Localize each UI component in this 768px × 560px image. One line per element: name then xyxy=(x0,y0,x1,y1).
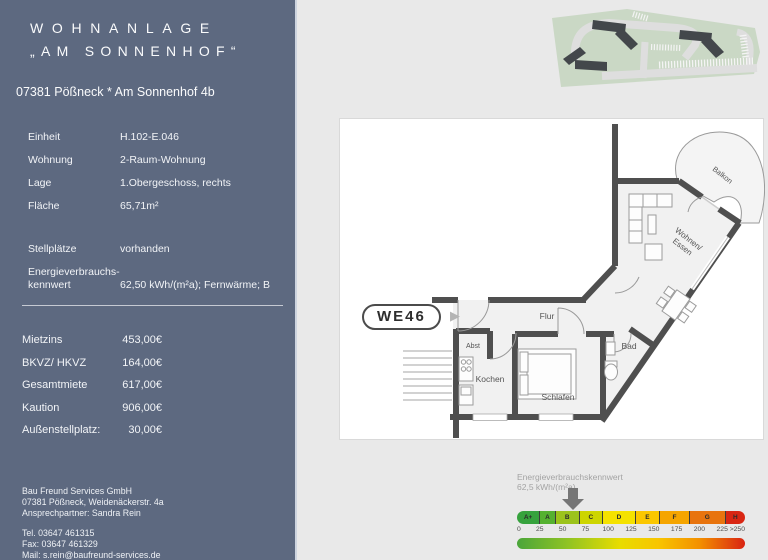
info-label: Stellplätze xyxy=(28,243,120,255)
energy-tick: >250 xyxy=(730,526,745,533)
price-row-mietzins: Mietzins 453,00€ xyxy=(22,334,295,346)
energy-gradient-bar xyxy=(517,538,745,549)
room-label-bad: Bad xyxy=(621,341,636,351)
energy-class-F: F xyxy=(659,511,689,524)
floorplan-panel: Flur Abst Kochen Schlafen Bad Wohnen/ Es… xyxy=(339,118,764,440)
info-row-energie: kennwert 62,50 kWh/(m²a); Fernwärme; B xyxy=(28,279,295,292)
energy-class-D: D xyxy=(602,511,635,524)
price-value: 617,00€ xyxy=(112,379,162,391)
energy-class-G: G xyxy=(689,511,725,524)
price-row-bkvz: BKVZ/ HKVZ 164,00€ xyxy=(22,357,295,369)
energy-class-A: A xyxy=(539,511,554,524)
info-value: 65,71m² xyxy=(120,200,295,212)
price-label: Kaution xyxy=(22,402,112,414)
price-value: 164,00€ xyxy=(112,357,162,369)
info-label: Lage xyxy=(28,177,120,189)
price-value: 453,00€ xyxy=(112,334,162,346)
side-table xyxy=(648,215,656,234)
energy-value-arrow-icon xyxy=(561,488,585,510)
contact-block: Bau Freund Services GmbH 07381 Pößneck, … xyxy=(22,486,164,560)
info-label: Fläche xyxy=(28,200,120,212)
stairs-icon xyxy=(403,351,452,400)
price-row-aussenstellplatz: Außenstellplatz: 30,00€ xyxy=(22,424,295,436)
floorplan-drawing: Flur Abst Kochen Schlafen Bad Wohnen/ Es… xyxy=(340,119,765,441)
contact-mail: Mail: s.rein@baufreund-services.de xyxy=(22,550,164,560)
contact-tel: Tel. 03647 461315 xyxy=(22,528,164,539)
unit-tag: WE46 xyxy=(362,304,441,330)
energy-tick: 175 xyxy=(671,526,682,533)
energy-tick: 200 xyxy=(694,526,705,533)
info-value: 1.Obergeschoss, rechts xyxy=(120,177,295,189)
energy-label-line2: kennwert xyxy=(28,279,120,292)
main-area: Flur Abst Kochen Schlafen Bad Wohnen/ Es… xyxy=(299,0,768,560)
energy-tick: 150 xyxy=(648,526,659,533)
energy-label-line1: Energieverbrauchs- xyxy=(28,266,295,279)
price-label: Mietzins xyxy=(22,334,112,346)
energy-axis-ticks: 0255075100125150175200225>250 xyxy=(517,526,745,535)
energy-value: 62,50 kWh/(m²a); Fernwärme; B xyxy=(120,279,270,292)
energy-class-A+: A+ xyxy=(517,511,539,524)
price-value: 906,00€ xyxy=(112,402,162,414)
energy-class-H: H xyxy=(725,511,745,524)
info-row-lage: Lage 1.Obergeschoss, rechts xyxy=(28,177,295,189)
page-title-line2: „AM SONNENHOF“ xyxy=(30,43,295,59)
sidebar-divider xyxy=(22,305,283,306)
room-label-schlafen: Schlafen xyxy=(541,392,574,402)
info-value: vorhanden xyxy=(120,243,295,255)
price-list: Mietzins 453,00€ BKVZ/ HKVZ 164,00€ Gesa… xyxy=(0,334,295,436)
room-label-flur: Flur xyxy=(540,311,555,321)
site-plan-illustration xyxy=(547,2,768,97)
toilet xyxy=(605,364,618,380)
energy-tick: 125 xyxy=(625,526,636,533)
info-value: H.102-E.046 xyxy=(120,131,295,143)
price-label: Gesamtmiete xyxy=(22,379,112,391)
energy-class-bar: A+ABCDEFGH xyxy=(517,511,745,524)
energy-tick: 0 xyxy=(517,526,521,533)
info-label: Einheit xyxy=(28,131,120,143)
property-address: 07381 Pößneck * Am Sonnenhof 4b xyxy=(0,85,295,99)
title-block: WOHNANLAGE „AM SONNENHOF“ xyxy=(0,0,295,59)
contact-address: 07381 Pößneck, Weidenäckerstr. 4a xyxy=(22,497,164,508)
energy-class-E: E xyxy=(635,511,659,524)
expose-page: WOHNANLAGE „AM SONNENHOF“ 07381 Pößneck … xyxy=(0,0,768,560)
contact-person: Ansprechpartner: Sandra Rein xyxy=(22,508,164,519)
energy-class-B: B xyxy=(555,511,579,524)
price-label: Außenstellplatz: xyxy=(22,424,112,436)
energy-tick: 225 xyxy=(717,526,728,533)
energy-chart-title: Energieverbrauchskennwert xyxy=(517,472,745,482)
info-value: 2-Raum-Wohnung xyxy=(120,154,295,166)
unit-tag-label: WE46 xyxy=(377,308,426,325)
sidebar: WOHNANLAGE „AM SONNENHOF“ 07381 Pößneck … xyxy=(0,0,297,560)
info-label: Wohnung xyxy=(28,154,120,166)
price-row-kaution: Kaution 906,00€ xyxy=(22,402,295,414)
sofa xyxy=(629,194,672,207)
energy-class-C: C xyxy=(579,511,602,524)
contact-fax: Fax: 03647 461329 xyxy=(22,539,164,550)
price-row-gesamtmiete: Gesamtmiete 617,00€ xyxy=(22,379,295,391)
info-row-flaeche: Fläche 65,71m² xyxy=(28,200,295,212)
coffee-table xyxy=(645,244,662,260)
unit-info-list: Einheit H.102-E.046 Wohnung 2-Raum-Wohnu… xyxy=(0,131,295,292)
energy-tick: 75 xyxy=(582,526,590,533)
energy-tick: 25 xyxy=(536,526,544,533)
energy-tick: 50 xyxy=(559,526,567,533)
info-row-wohnung: Wohnung 2-Raum-Wohnung xyxy=(28,154,295,166)
energy-tick: 100 xyxy=(603,526,614,533)
info-row-stellplaetze: Stellplätze vorhanden xyxy=(28,243,295,255)
page-title-line1: WOHNANLAGE xyxy=(30,20,295,36)
room-label-kochen: Kochen xyxy=(476,374,505,384)
unit-arrow-icon: ▶ xyxy=(450,308,460,324)
contact-company: Bau Freund Services GmbH xyxy=(22,486,164,497)
price-value: 30,00€ xyxy=(112,424,162,436)
energy-chart-value: 62,5 kWh/(m²a) xyxy=(517,482,745,492)
info-row-einheit: Einheit H.102-E.046 xyxy=(28,131,295,143)
price-label: BKVZ/ HKVZ xyxy=(22,357,112,369)
sink xyxy=(606,342,615,355)
room-label-abst: Abst xyxy=(466,343,480,350)
energy-scale-chart: Energieverbrauchskennwert 62,5 kWh/(m²a)… xyxy=(517,472,745,554)
